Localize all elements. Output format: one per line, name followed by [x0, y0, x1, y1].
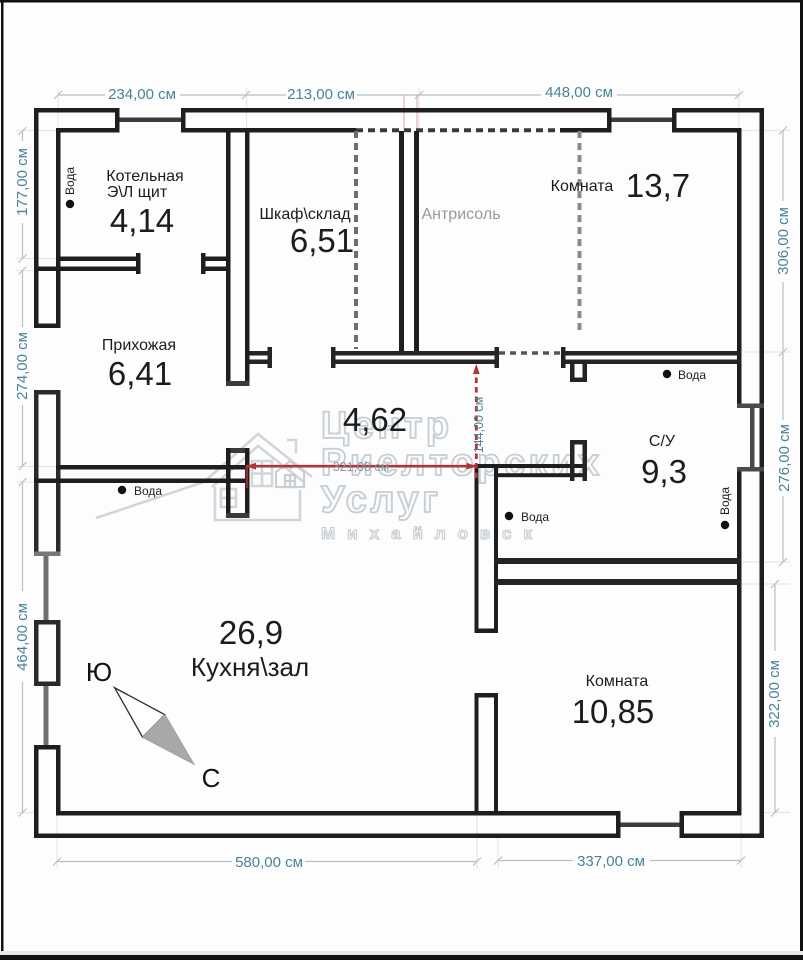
svg-text:4,62: 4,62 — [343, 401, 407, 438]
svg-text:Комната: Комната — [551, 178, 614, 195]
svg-text:322,00 см: 322,00 см — [766, 660, 783, 728]
svg-text:321,00 см: 321,00 см — [333, 460, 390, 474]
svg-text:Вода: Вода — [521, 510, 549, 524]
svg-text:337,00 см: 337,00 см — [577, 853, 645, 870]
svg-text:Михайловск: Михайловск — [321, 524, 544, 543]
svg-text:9,3: 9,3 — [641, 453, 687, 490]
svg-text:464,00 см: 464,00 см — [14, 603, 31, 671]
svg-text:13,7: 13,7 — [626, 167, 690, 204]
svg-text:Ю: Ю — [86, 657, 112, 687]
svg-text:Э\Л щит: Э\Л щит — [107, 184, 168, 201]
svg-text:144,00 см: 144,00 см — [472, 397, 486, 454]
svg-text:Вода: Вода — [718, 487, 732, 515]
svg-text:580,00 см: 580,00 см — [235, 854, 303, 871]
svg-text:10,85: 10,85 — [572, 693, 655, 730]
svg-text:Услуг: Услуг — [321, 479, 441, 521]
svg-text:Комната: Комната — [586, 673, 649, 690]
svg-text:213,00 см: 213,00 см — [287, 86, 355, 103]
svg-text:Вода: Вода — [678, 368, 706, 382]
svg-text:Вода: Вода — [63, 167, 77, 195]
svg-text:6,51: 6,51 — [290, 222, 354, 259]
svg-text:274,00 см: 274,00 см — [14, 332, 31, 400]
svg-text:Котельная: Котельная — [106, 168, 183, 185]
svg-text:177,00 см: 177,00 см — [14, 148, 31, 216]
svg-text:4,14: 4,14 — [110, 202, 174, 239]
svg-text:Антрисоль: Антрисоль — [421, 206, 500, 223]
svg-text:26,9: 26,9 — [219, 614, 283, 651]
svg-text:Прихожая: Прихожая — [102, 337, 176, 354]
svg-text:276,00 см: 276,00 см — [776, 424, 793, 492]
svg-text:306,00 см: 306,00 см — [775, 207, 792, 275]
svg-text:234,00 см: 234,00 см — [108, 86, 176, 103]
svg-text:448,00 см: 448,00 см — [545, 84, 613, 101]
svg-text:6,41: 6,41 — [108, 355, 172, 392]
svg-text:Шкаф\склад: Шкаф\склад — [259, 206, 351, 223]
svg-text:С/У: С/У — [649, 433, 676, 450]
svg-text:Кухня\зал: Кухня\зал — [191, 652, 309, 682]
svg-text:Вода: Вода — [134, 484, 162, 498]
svg-text:С: С — [202, 763, 221, 793]
